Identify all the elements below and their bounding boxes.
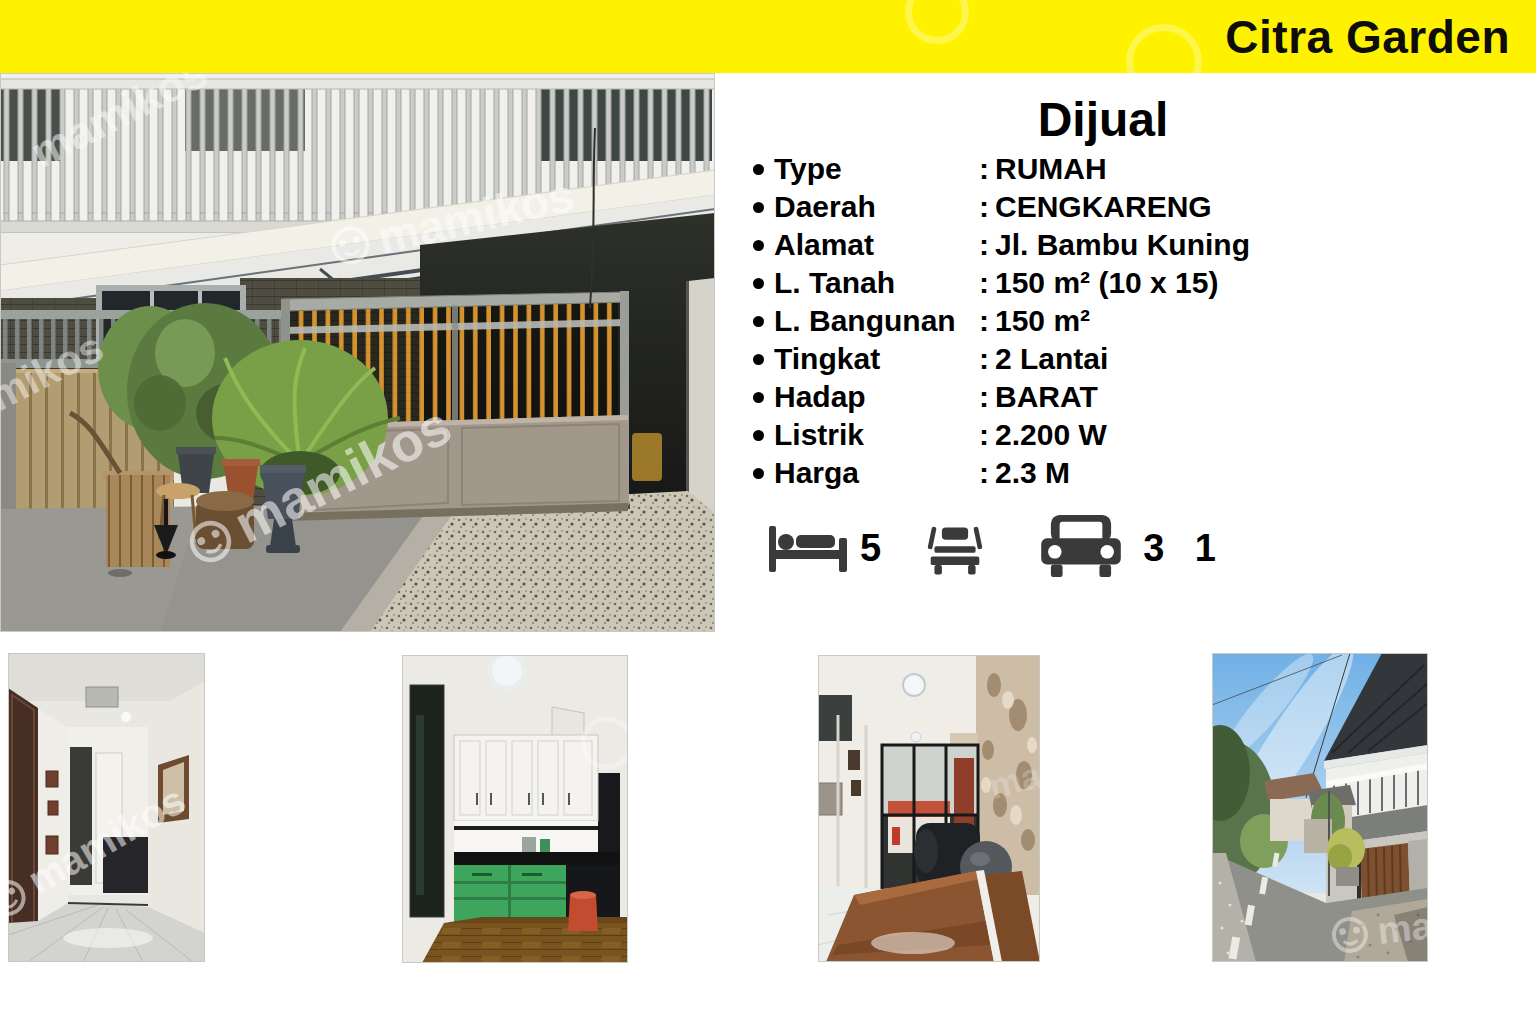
detail-colon: : bbox=[979, 380, 995, 414]
detail-value: Jl. Bambu Kuning bbox=[995, 228, 1250, 262]
detail-value: 2 Lantai bbox=[995, 342, 1108, 376]
detail-colon: : bbox=[979, 304, 995, 338]
bullet-icon bbox=[753, 430, 764, 441]
bed-icon bbox=[768, 520, 848, 582]
detail-label: Harga bbox=[774, 456, 979, 490]
detail-row-tingkat: Tingkat : 2 Lantai bbox=[753, 340, 1250, 378]
bullet-icon bbox=[753, 354, 764, 365]
flyer: Citra Garden bbox=[0, 0, 1536, 1024]
detail-colon: : bbox=[979, 228, 995, 262]
detail-row-daerah: Daerah : CENGKARENG bbox=[753, 188, 1250, 226]
bullet-icon bbox=[753, 316, 764, 327]
bullet-icon bbox=[753, 164, 764, 175]
detail-value: 150 m² (10 x 15) bbox=[995, 266, 1218, 300]
detail-row-harga: Harga : 2.3 M bbox=[753, 454, 1250, 492]
bullet-icon bbox=[753, 240, 764, 251]
detail-label: Hadap bbox=[774, 380, 979, 414]
detail-colon: : bbox=[979, 266, 995, 300]
thumb-photo-street-view: mamikos bbox=[1212, 653, 1428, 962]
bullet-icon bbox=[753, 202, 764, 213]
kitchen-illustration bbox=[402, 655, 628, 963]
detail-colon: : bbox=[979, 190, 995, 224]
detail-row-alamat: Alamat : Jl. Bambu Kuning bbox=[753, 226, 1250, 264]
car-icon bbox=[1039, 513, 1123, 583]
living-room-illustration bbox=[818, 655, 1040, 962]
detail-list: Type : RUMAH Daerah : CENGKARENG Alamat … bbox=[753, 150, 1250, 492]
thumb-photo-kitchen bbox=[402, 655, 628, 963]
detail-value: CENGKARENG bbox=[995, 190, 1212, 224]
detail-label: Type bbox=[774, 152, 979, 186]
listing-title: Dijual bbox=[740, 92, 1466, 147]
detail-value: 2.200 W bbox=[995, 418, 1107, 452]
detail-label: Alamat bbox=[774, 228, 979, 262]
detail-row-hadap: Hadap : BARAT bbox=[753, 378, 1250, 416]
bullet-icon bbox=[753, 392, 764, 403]
detail-row-l-bangunan: L. Bangunan : 150 m² bbox=[753, 302, 1250, 340]
detail-value: 150 m² bbox=[995, 304, 1090, 338]
detail-colon: : bbox=[979, 456, 995, 490]
detail-row-type: Type : RUMAH bbox=[753, 150, 1250, 188]
street-view-illustration bbox=[1212, 653, 1428, 962]
banner: Citra Garden bbox=[0, 0, 1536, 73]
main-photo-house-exterior: mamikos mamikos mamikos mamikos bbox=[0, 73, 715, 632]
bullet-icon bbox=[753, 278, 764, 289]
detail-value: RUMAH bbox=[995, 152, 1107, 186]
detail-value: BARAT bbox=[995, 380, 1098, 414]
bullet-icon bbox=[753, 468, 764, 479]
detail-label: Tingkat bbox=[774, 342, 979, 376]
watermark-ring-icon bbox=[905, 0, 969, 44]
detail-label: L. Bangunan bbox=[774, 304, 979, 338]
detail-row-listrik: Listrik : 2.200 W bbox=[753, 416, 1250, 454]
feature-row: 5 3 1 bbox=[768, 512, 1226, 584]
detail-row-l-tanah: L. Tanah : 150 m² (10 x 15) bbox=[753, 264, 1250, 302]
detail-label: Listrik bbox=[774, 418, 979, 452]
watermark-ring-icon bbox=[1126, 24, 1202, 100]
thumb-photo-living-room: mamikos bbox=[818, 655, 1040, 962]
bed-front-icon bbox=[925, 522, 985, 584]
detail-colon: : bbox=[979, 418, 995, 452]
house-exterior-illustration bbox=[0, 73, 715, 632]
detail-label: Daerah bbox=[774, 190, 979, 224]
detail-label: L. Tanah bbox=[774, 266, 979, 300]
detail-colon: : bbox=[979, 342, 995, 376]
garage-count: 3 1 bbox=[1143, 527, 1226, 570]
banner-title: Citra Garden bbox=[1225, 10, 1510, 64]
detail-colon: : bbox=[979, 152, 995, 186]
bedroom-count: 5 bbox=[860, 527, 881, 570]
detail-value: 2.3 M bbox=[995, 456, 1070, 490]
hallway-illustration bbox=[8, 653, 205, 962]
thumb-photo-hallway: mamikos bbox=[8, 653, 205, 962]
